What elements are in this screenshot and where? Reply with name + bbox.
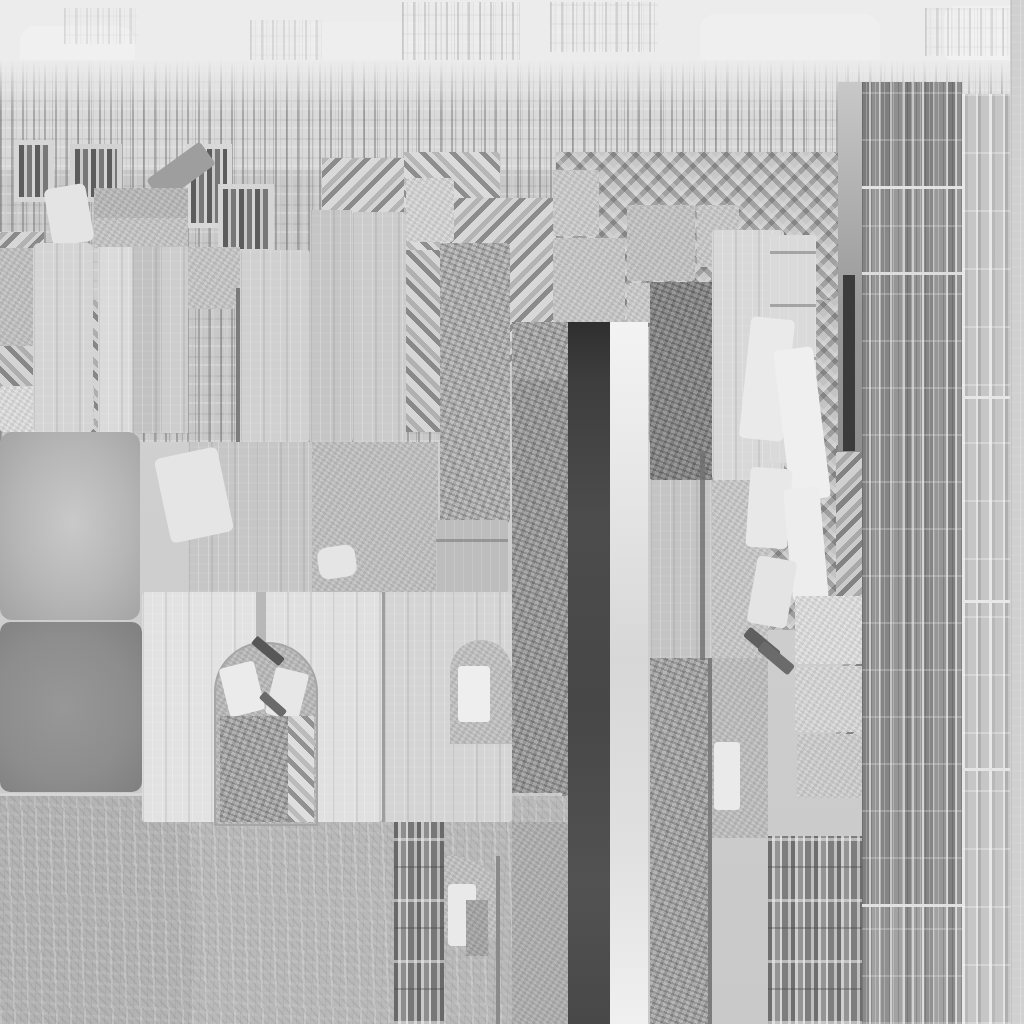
mottled-block: [0, 432, 140, 620]
dark-strip: [843, 275, 855, 451]
noise-drip: [402, 2, 520, 62]
barcode-panel: [962, 94, 1010, 1024]
stone-tile: [795, 666, 865, 732]
stone-column: [650, 658, 710, 1024]
arch-pillar: [466, 900, 488, 956]
floor-slab: [0, 796, 192, 1024]
stone-slab: [352, 212, 406, 442]
noise-drip: [925, 8, 1017, 56]
glitch-strip-panel: [394, 822, 444, 1024]
stone-column: [512, 380, 568, 822]
stone-tile: [627, 205, 695, 281]
stone-slab: [98, 247, 132, 433]
hatch-patch: [406, 250, 444, 432]
light-patch: [458, 666, 490, 722]
break-line: [862, 904, 962, 907]
stone-slab: [512, 822, 568, 1024]
barcode-panel: [862, 274, 962, 906]
joint-line: [382, 592, 385, 822]
stone-tile: [795, 596, 865, 664]
stone-slab: [240, 250, 310, 442]
break-line: [962, 600, 1010, 603]
dark-mottled-block: [0, 622, 142, 792]
grid-block: [436, 520, 508, 592]
edge-strip: [1010, 0, 1024, 1024]
stone-slab: [0, 248, 34, 346]
light-splotch: [316, 544, 358, 581]
dark-block: [650, 282, 714, 480]
stone-slab: [310, 210, 352, 442]
stone-column: [512, 322, 568, 382]
stone-slab: [160, 247, 188, 433]
stone-slab: [94, 188, 188, 218]
stone-slab: [33, 243, 93, 433]
stone-slab: [132, 247, 160, 433]
break-line: [862, 186, 962, 189]
noise-drip: [250, 20, 322, 64]
glitch-strip-panel: [768, 836, 868, 1024]
noise-drip: [550, 2, 658, 52]
dark-bar: [568, 322, 610, 1024]
barcode-panel: [862, 188, 962, 274]
stone-tile: [797, 734, 863, 798]
stone-column: [440, 243, 510, 523]
stone-slab: [188, 247, 240, 309]
window-block: [218, 184, 274, 254]
barcode-panel: [862, 906, 962, 1024]
break-line: [962, 768, 1010, 771]
stone-tile: [406, 178, 454, 242]
break-line: [962, 396, 1010, 399]
stone-tile: [553, 238, 625, 324]
stone-tile: [553, 170, 599, 236]
light-bar: [610, 322, 648, 1024]
joint-line: [496, 856, 500, 1024]
arch-glitch-strip: [288, 716, 314, 822]
break-line: [862, 272, 962, 275]
texture-canvas: [0, 0, 1024, 1024]
arch-pillar: [220, 716, 288, 822]
noise-drip: [64, 8, 138, 44]
stone-slab: [94, 218, 188, 248]
light-patch: [714, 742, 740, 810]
barcode-panel: [862, 82, 962, 188]
joint-line: [700, 452, 705, 660]
